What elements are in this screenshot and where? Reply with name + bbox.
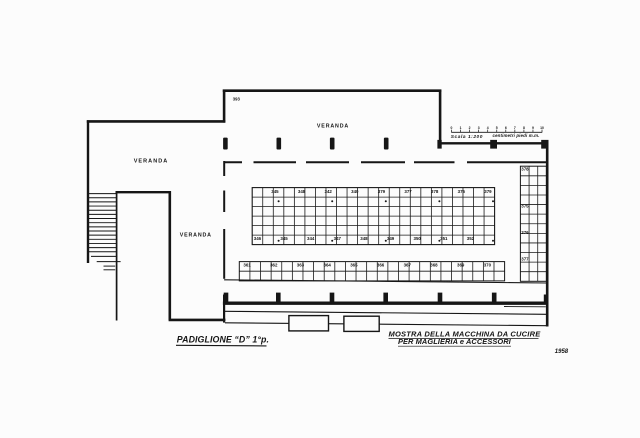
svg-text:348: 348 (298, 189, 306, 194)
svg-text:369: 369 (457, 263, 465, 268)
svg-text:370: 370 (484, 263, 492, 268)
svg-text:9: 9 (532, 126, 534, 130)
svg-text:346: 346 (254, 236, 262, 241)
svg-text:376: 376 (521, 230, 529, 235)
svg-text:377: 377 (404, 189, 412, 194)
svg-text:6: 6 (505, 126, 507, 130)
svg-text:352: 352 (467, 236, 475, 241)
svg-text:0: 0 (451, 126, 453, 130)
svg-text:centimetri piedi m.m.: centimetri piedi m.m. (493, 133, 540, 138)
svg-text:393: 393 (233, 96, 241, 101)
svg-text:377: 377 (521, 257, 529, 262)
svg-text:10: 10 (540, 126, 544, 130)
svg-text:351: 351 (440, 236, 448, 241)
svg-text:379: 379 (484, 189, 492, 194)
svg-text:345: 345 (271, 189, 279, 194)
svg-text:2: 2 (469, 126, 471, 130)
svg-text:366: 366 (377, 263, 385, 268)
svg-text:345: 345 (280, 236, 288, 241)
svg-text:363: 363 (297, 263, 305, 268)
svg-text:379: 379 (378, 189, 386, 194)
svg-text:7: 7 (514, 126, 516, 130)
svg-text:362: 362 (270, 263, 278, 268)
svg-text:347: 347 (334, 236, 342, 241)
svg-text:367: 367 (404, 263, 412, 268)
svg-text:350: 350 (414, 236, 422, 241)
svg-text:VERANDA: VERANDA (317, 124, 349, 130)
svg-text:4: 4 (487, 126, 489, 130)
svg-text:364: 364 (324, 263, 332, 268)
svg-text:342: 342 (325, 189, 333, 194)
svg-text:365: 365 (350, 263, 358, 268)
svg-text:PADIGLIONE “D” 1°p.: PADIGLIONE “D” 1°p. (177, 334, 269, 344)
svg-text:VERANDA: VERANDA (134, 158, 169, 164)
svg-text:5: 5 (496, 126, 498, 130)
svg-text:376: 376 (458, 189, 466, 194)
svg-text:3: 3 (478, 126, 480, 130)
svg-text:375: 375 (521, 204, 529, 209)
svg-text:1: 1 (460, 126, 462, 130)
svg-text:368: 368 (430, 263, 438, 268)
svg-text:348: 348 (360, 236, 368, 241)
svg-text:8: 8 (523, 126, 525, 130)
svg-text:378: 378 (521, 166, 529, 171)
svg-text:361: 361 (243, 263, 251, 268)
svg-text:Scala 1:200: Scala 1:200 (451, 134, 483, 140)
svg-text:340: 340 (351, 189, 359, 194)
svg-text:349: 349 (387, 236, 395, 241)
svg-text:378: 378 (431, 189, 439, 194)
svg-text:1958: 1958 (555, 349, 569, 355)
svg-text:344: 344 (307, 236, 315, 241)
svg-text:VERANDA: VERANDA (180, 233, 212, 239)
